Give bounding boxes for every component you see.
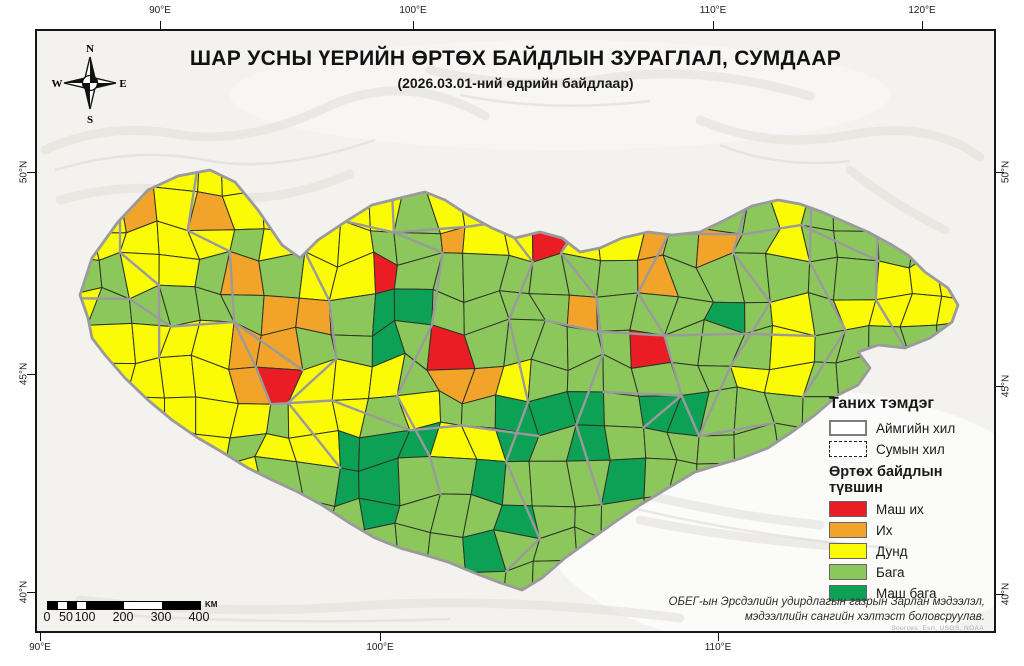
tick-left-50°N [27,172,35,173]
scalebar-segment-2 [67,602,77,609]
scalebar-segment-5 [124,602,162,609]
aimag-boundary-swatch [829,420,867,436]
map-title: ШАР УСНЫ ҮЕРИЙН ӨРТӨХ БАЙДЛЫН ЗУРАГЛАЛ, … [37,47,994,71]
legend-level-row-3: Бага [829,564,989,580]
graticule-top-100°E: 100°E [399,5,426,16]
legend-level-swatch-3 [829,564,867,580]
tick-bottom-100°E [380,633,381,641]
attribution-line1: ОБЕГ-ын Эрсдэлийн удирдлагын газрын Зарл… [669,595,985,610]
legend-soum-boundary-row: Сумын хил [829,441,989,457]
map-document: ШАР УСНЫ ҮЕРИЙН ӨРТӨХ БАЙДЛЫН ЗУРАГЛАЛ, … [0,0,1024,666]
tick-right-50°N [996,172,1004,173]
compass-s-label: S [87,114,93,126]
attribution-line2: мэдээллийн сангийн хэлтэст боловсруулав. [669,610,985,625]
tick-right-45°N [996,386,1004,387]
compass-w-label: W [52,78,63,90]
tick-left-40°N [27,592,35,593]
scalebar-label-300: 300 [151,610,172,624]
soum-boundary-label: Сумын хил [876,442,945,457]
tick-top-110°E [713,21,714,29]
legend-level-row-1: Их [829,522,989,538]
tick-top-100°E [413,21,414,29]
scalebar-label-200: 200 [113,610,134,624]
basemap-credit: Sources: Esri, USGS, NOAA [891,625,984,632]
map-frame: ШАР УСНЫ ҮЕРИЙН ӨРТӨХ БАЙДЛЫН ЗУРАГЛАЛ, … [35,29,996,633]
legend-level-swatch-0 [829,501,867,517]
graticule-bottom-90°E: 90°E [29,642,51,653]
graticule-bottom-110°E: 110°E [705,642,732,653]
scalebar: 050100200300400 KM [45,599,275,629]
tick-right-40°N [996,594,1004,595]
tick-bottom-90°E [40,633,41,641]
legend-level-swatch-2 [829,543,867,559]
scalebar-label-50: 50 [59,610,73,624]
legend-level-label-1: Их [876,523,892,538]
scalebar-segment-6 [162,602,200,609]
scalebar-segment-0 [48,602,58,609]
tick-left-45°N [27,374,35,375]
legend-aimag-boundary-row: Аймгийн хил [829,420,989,436]
legend-levels-title: Өртөх байдлын түвшин [829,464,989,496]
compass-rose-icon: N E S W [47,37,133,129]
graticule-top-120°E: 120°E [908,5,935,16]
scalebar-unit: KM [205,600,217,609]
scalebar-label-0: 0 [44,610,51,624]
legend-level-row-0: Маш их [829,501,989,517]
scalebar-label-400: 400 [189,610,210,624]
legend-levels-list: Маш ихИхДундБагаМаш бага [829,501,989,601]
map-subtitle: (2026.03.01-ний өдрийн байдлаар) [37,75,994,91]
graticule-bottom-100°E: 100°E [366,642,393,653]
scalebar-label-100: 100 [75,610,96,624]
legend-level-label-0: Маш их [876,502,924,517]
aimag-boundary-label: Аймгийн хил [876,421,955,436]
scalebar-labels: 050100200300400 [47,610,247,626]
graticule-top-90°E: 90°E [149,5,171,16]
legend-level-label-3: Бага [876,565,905,580]
scalebar-bar [47,601,201,610]
tick-top-90°E [160,21,161,29]
tick-top-120°E [922,21,923,29]
attribution-text: ОБЕГ-ын Эрсдэлийн удирдлагын газрын Зарл… [669,595,985,625]
scalebar-segment-1 [58,602,68,609]
legend-level-swatch-1 [829,522,867,538]
legend-title: Таних тэмдэг [829,395,989,413]
compass-n-label: N [86,43,94,55]
scalebar-segment-3 [77,602,87,609]
tick-bottom-110°E [718,633,719,641]
compass-e-label: E [119,78,126,90]
legend-level-label-2: Дунд [876,544,908,559]
scalebar-segment-4 [86,602,124,609]
legend-level-row-2: Дунд [829,543,989,559]
soum-boundary-swatch [829,441,867,457]
graticule-top-110°E: 110°E [700,5,727,16]
legend: Таних тэмдэг Аймгийн хил Сумын хил Өртөх… [829,395,989,606]
